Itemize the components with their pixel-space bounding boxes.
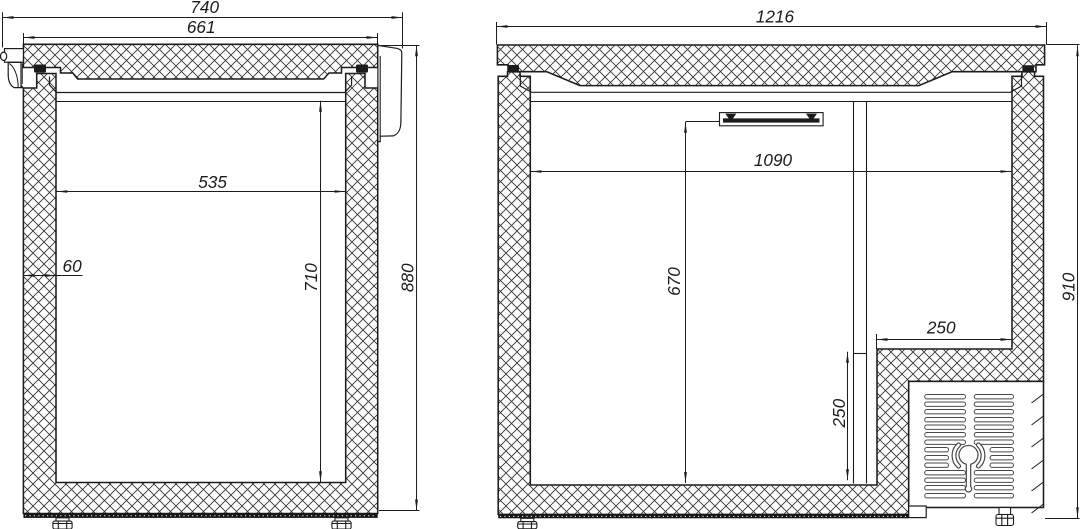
svg-text:250: 250 <box>926 318 956 338</box>
svg-text:1216: 1216 <box>756 6 795 26</box>
svg-text:910: 910 <box>1059 272 1079 301</box>
svg-text:250: 250 <box>829 398 849 428</box>
svg-text:740: 740 <box>190 0 219 17</box>
svg-text:880: 880 <box>398 263 418 292</box>
svg-text:710: 710 <box>301 263 321 292</box>
svg-text:1090: 1090 <box>754 150 793 170</box>
svg-text:60: 60 <box>63 256 83 276</box>
svg-text:670: 670 <box>664 267 684 296</box>
svg-text:535: 535 <box>198 172 227 192</box>
svg-text:661: 661 <box>187 17 216 37</box>
